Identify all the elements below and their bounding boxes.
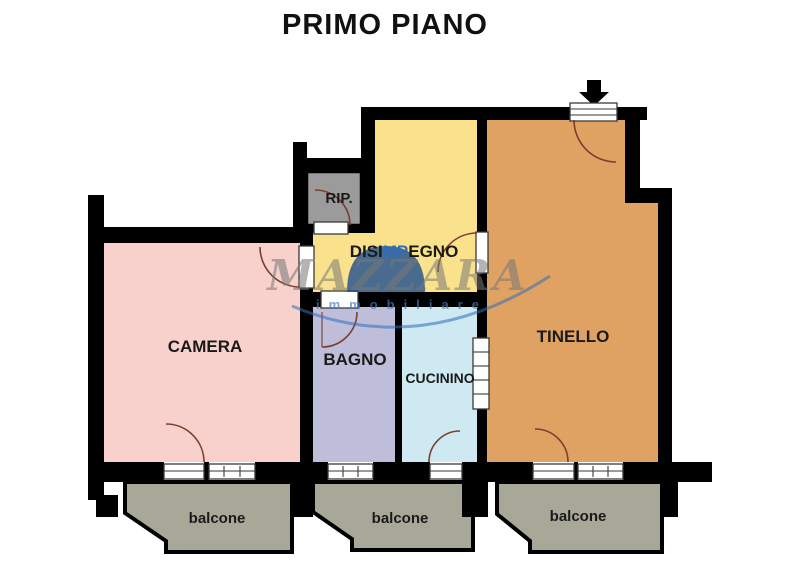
entrance-door (570, 103, 617, 121)
tinello-label: TINELLO (537, 327, 610, 346)
balcony-2-label: balcone (372, 510, 429, 527)
page-title: PRIMO PIANO (282, 9, 488, 41)
balcony-3-label: balcone (550, 508, 607, 525)
floor-plan-canvas: PRIMO PIANO (0, 0, 800, 565)
disimpegno-label-post: EGNO (408, 242, 458, 261)
balcony-1-label: balcone (189, 510, 246, 527)
disimpegno-label-pre: DISI (350, 242, 383, 261)
disimpegno-label: DISIMPEGNO (350, 242, 459, 261)
cucinino-label: CUCININO (405, 370, 474, 386)
rip-label: RIP. (325, 190, 352, 207)
camera-label: CAMERA (168, 337, 243, 356)
entrance-arrow-icon (579, 80, 609, 106)
rip-door (314, 222, 348, 234)
watermark-subtitle: immobiliare (316, 297, 488, 312)
cucinino-tinello-passage (473, 338, 489, 409)
floor-plan-page: PRIMO PIANO (0, 0, 800, 565)
bagno-label: BAGNO (323, 350, 386, 369)
disimpegno-label-mid: MP (383, 242, 409, 261)
room-bagno (313, 307, 395, 462)
